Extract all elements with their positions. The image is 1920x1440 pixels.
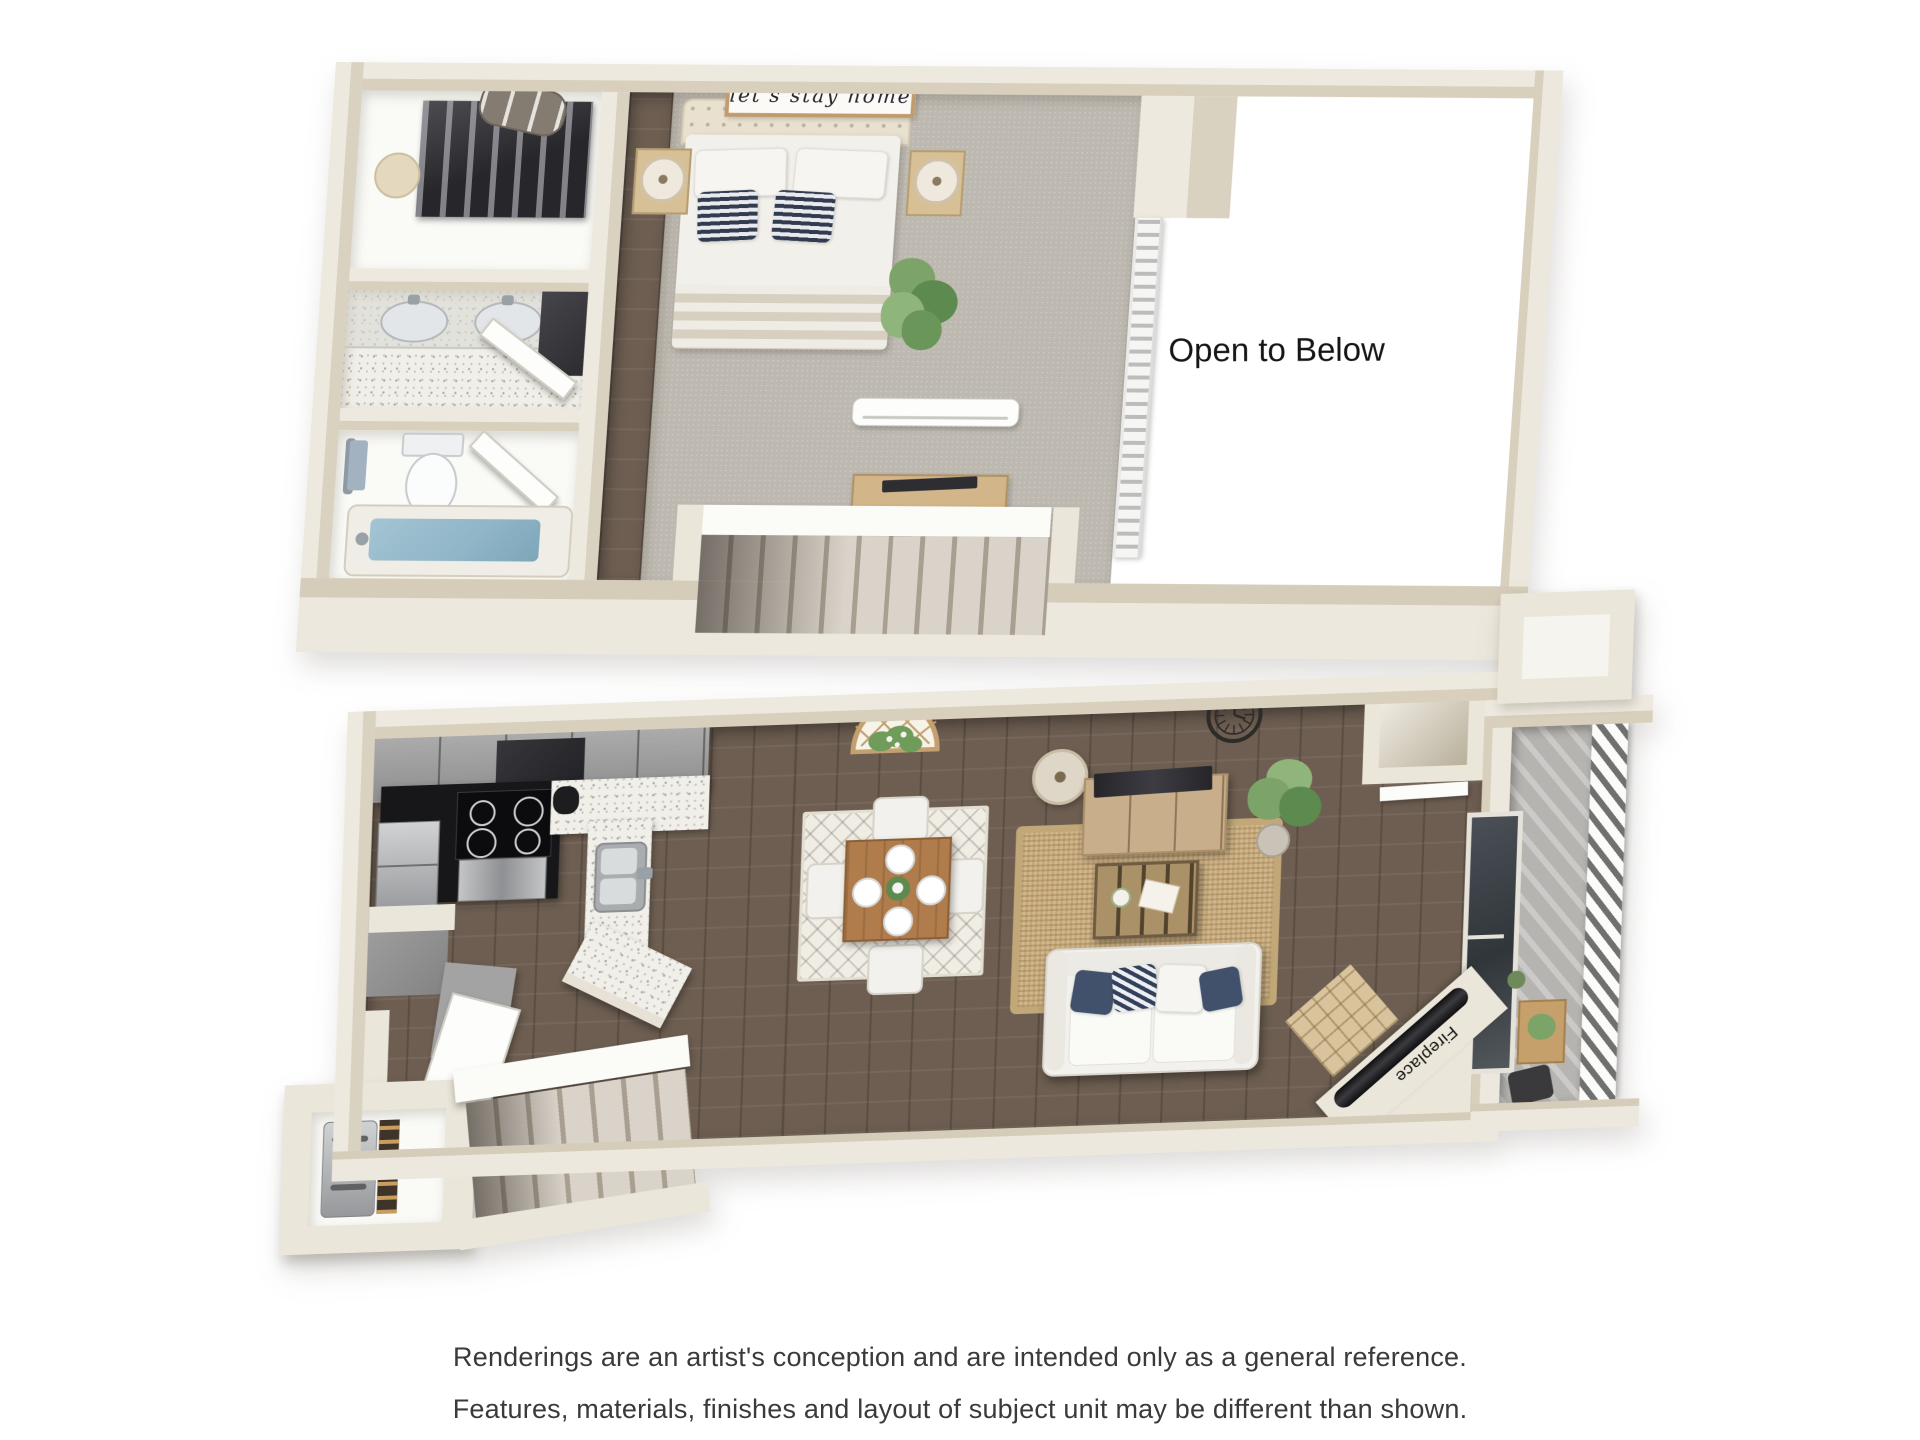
sofa <box>1042 942 1263 1077</box>
niche-interior <box>1379 697 1470 768</box>
plant-foliage <box>900 310 943 350</box>
upper-stairs-lower-run <box>695 581 1048 635</box>
balcony-table-plant <box>1527 1013 1556 1040</box>
faucet-left <box>407 295 420 305</box>
kitchen-faucet <box>636 867 652 880</box>
burner <box>514 828 541 855</box>
burner <box>469 800 496 827</box>
plate <box>851 877 882 908</box>
faucet-right <box>501 295 514 305</box>
tub-faucet <box>355 532 369 545</box>
fiddle-leaf-plant <box>1243 758 1327 861</box>
window-mullion <box>1468 934 1504 939</box>
closet-floor <box>350 90 602 270</box>
refrigerator <box>375 821 440 917</box>
counter-decor <box>553 786 580 815</box>
vanity-room-floor <box>340 290 588 410</box>
vanity-bath-wall <box>339 408 580 432</box>
floor-plan-page: let's stay home <box>0 0 1920 1440</box>
fridge-door-seam <box>378 864 438 868</box>
bedroom-plant <box>876 258 963 355</box>
dining-table <box>842 837 952 943</box>
burner <box>466 828 497 859</box>
plate <box>885 844 916 875</box>
dryer-door-slot <box>330 1183 366 1190</box>
magazine <box>1138 879 1180 914</box>
sink-bowl <box>600 848 637 875</box>
sofa-arm-left <box>1044 950 1068 1071</box>
kitchen-sink <box>593 841 648 913</box>
plant-foliage <box>1279 786 1322 827</box>
open-to-below-label: Open to Below <box>1168 330 1448 369</box>
plant-vase <box>1255 823 1290 858</box>
sink-bowl <box>599 878 636 905</box>
wall-ac-unit <box>851 398 1020 427</box>
kitchen-hall-wall <box>368 904 455 933</box>
bathroom-door <box>469 430 559 514</box>
upper-floor-plan: let's stay home <box>296 62 1564 661</box>
bathtub <box>343 504 574 578</box>
loft-wall-stub <box>1133 96 1237 219</box>
closet-stool <box>373 152 422 198</box>
sofa-pillow-navy <box>1198 965 1243 1012</box>
disclaimer-line-2: Features, materials, finishes and layout… <box>0 1394 1920 1425</box>
plate <box>882 906 913 937</box>
entry-vestibule-protrusion <box>1497 589 1635 704</box>
bed-pillow-striped-left <box>697 189 758 242</box>
closet-vanity-wall <box>348 268 589 292</box>
balcony-table <box>1516 999 1566 1065</box>
dining-chair-bottom <box>866 943 924 995</box>
dining-chair-top <box>872 796 930 844</box>
sofa-pillow-navy <box>1069 969 1118 1015</box>
trunk-flowers <box>1111 887 1132 908</box>
burner <box>513 796 544 827</box>
lower-floor-plan: Fireplace <box>328 666 1656 1273</box>
gray-half-wall-a <box>366 930 448 997</box>
disclaimer-line-1: Renderings are an artist's conception an… <box>0 1342 1920 1373</box>
duvet-striped-foot <box>671 284 890 349</box>
coffee-table-trunk <box>1092 860 1199 940</box>
ac-vent-line <box>863 416 1008 420</box>
towel <box>347 440 368 490</box>
sofa-pillow-striped <box>1111 963 1158 1013</box>
balcony-wall-bottom <box>1470 1098 1639 1132</box>
bathroom-floor <box>329 430 579 580</box>
bed <box>666 98 908 350</box>
bed-pillow-striped-right <box>771 190 837 243</box>
stove-cooktop <box>455 789 554 860</box>
bathtub-water <box>368 518 541 561</box>
oven-door <box>457 857 547 902</box>
plate <box>916 875 947 906</box>
stair-ledge <box>700 505 1052 537</box>
